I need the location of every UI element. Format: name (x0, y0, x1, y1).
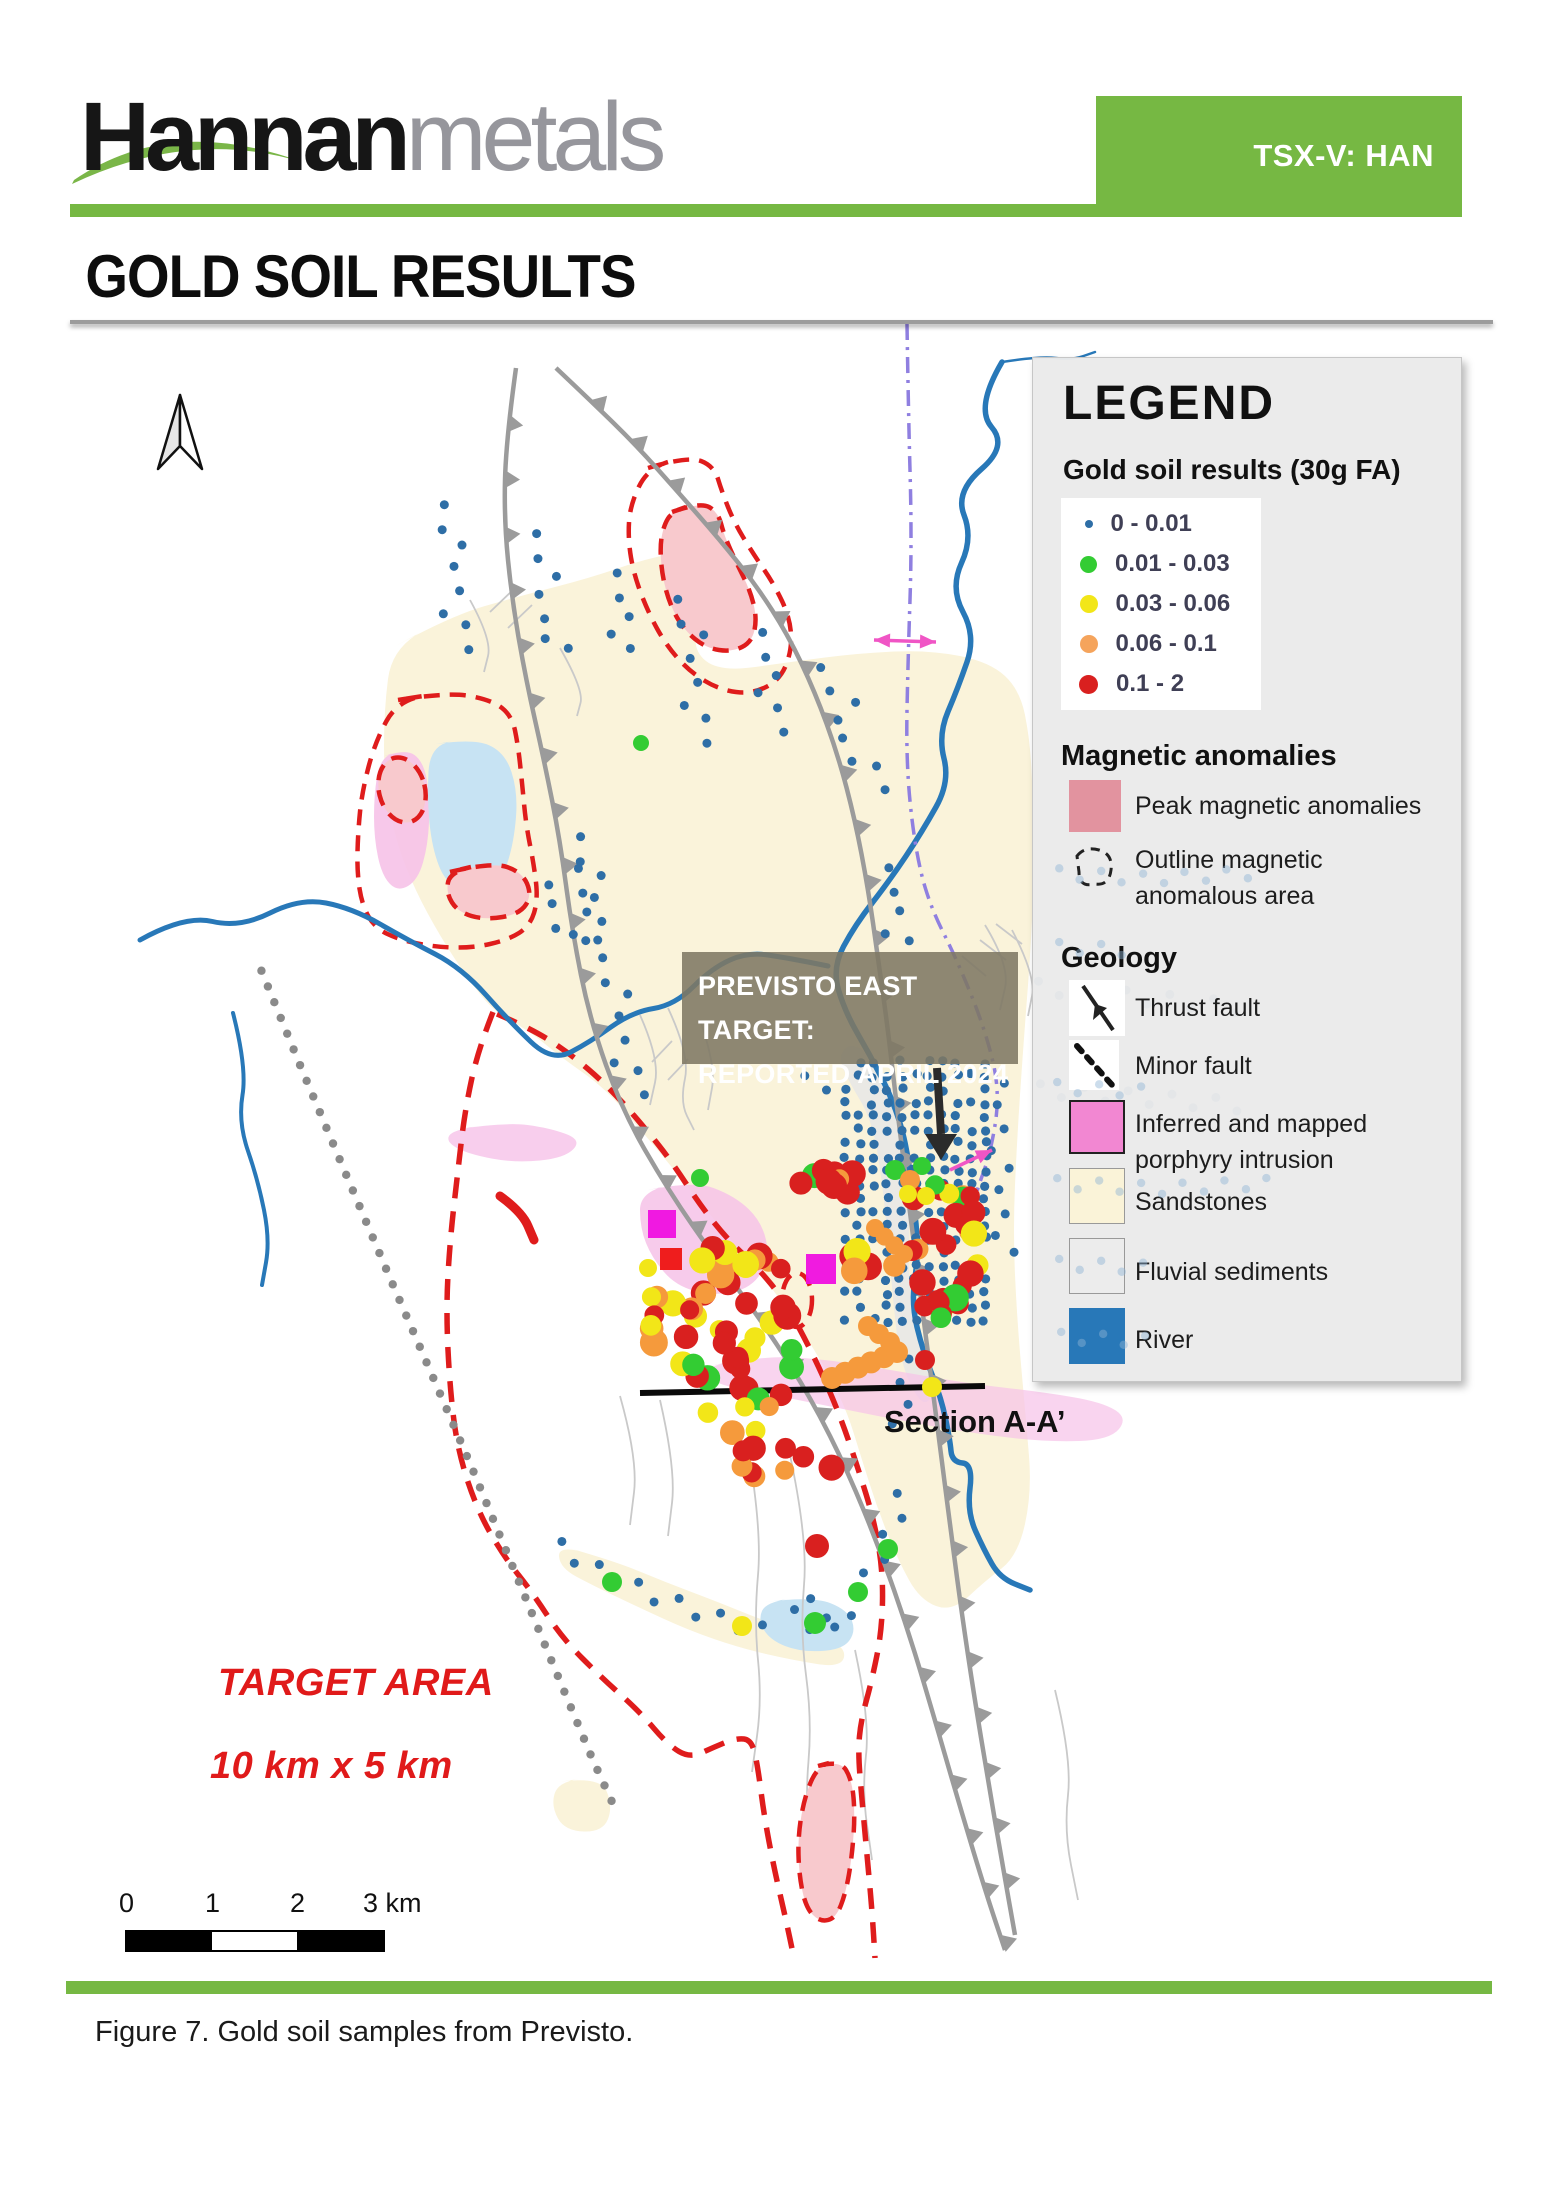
sandstones-swatch (1069, 1168, 1125, 1224)
previsto-target-label: PREVISTO EAST TARGET: REPORTED APRIL 202… (682, 952, 1018, 1064)
river-swatch (1069, 1308, 1125, 1364)
north-arrow-icon (148, 390, 212, 476)
figure-caption: Figure 7. Gold soil samples from Previst… (95, 2016, 633, 2049)
peak-magnetic-swatch (1069, 780, 1121, 832)
legend-title: LEGEND (1063, 376, 1275, 431)
previsto-line2: REPORTED APRIL 2024 (698, 1052, 1018, 1096)
page: Hannanmetals TSX-V: HAN GOLD SOIL RESULT… (0, 0, 1558, 2203)
class-label: 0 - 0.01 (1111, 510, 1192, 538)
river-label: River (1135, 1326, 1193, 1355)
title-row: GOLD SOIL RESULTS (70, 230, 1493, 318)
legend-class-row: 0.1 - 2 (1061, 664, 1261, 704)
porphyry-label1: Inferred and mapped (1135, 1110, 1367, 1139)
outline-magnetic-label1: Outline magnetic (1135, 846, 1323, 875)
class-label: 0.1 - 2 (1116, 670, 1184, 698)
porphyry-label2: porphyry intrusion (1135, 1146, 1334, 1175)
scale-bar-segments (125, 1930, 385, 1952)
legend-class-row: 0.03 - 0.06 (1061, 584, 1261, 624)
scale-tick-0: 0 (119, 1888, 134, 1919)
section-line-label: Section A-A’ (884, 1404, 1065, 1440)
class-label: 0.01 - 0.03 (1115, 550, 1230, 578)
scale-bar-mid-segment (212, 1932, 297, 1950)
logo-text: Hannanmetals (80, 62, 720, 212)
class-dot-blue (1085, 520, 1093, 528)
title-underline (70, 320, 1493, 324)
target-area-size-label: 10 km x 5 km (210, 1745, 453, 1788)
legend-magnetic-heading: Magnetic anomalies (1061, 740, 1337, 773)
scale-tick-2: 2 (290, 1888, 305, 1919)
class-dot-orange (1080, 635, 1098, 653)
target-area-label: TARGET AREA (218, 1662, 494, 1705)
sandstones-label: Sandstones (1135, 1188, 1267, 1217)
minor-fault-label: Minor fault (1135, 1052, 1252, 1081)
peak-magnetic-label: Peak magnetic anomalies (1135, 792, 1421, 821)
porphyry-swatch (1069, 1100, 1125, 1154)
minor-fault-icon (1069, 1040, 1119, 1090)
fluvial-swatch (1069, 1238, 1125, 1294)
fluvial-label: Fluvial sediments (1135, 1258, 1328, 1287)
outline-magnetic-label2: anomalous area (1135, 882, 1314, 911)
legend-class-row: 0 - 0.01 (1061, 504, 1261, 544)
thrust-fault-icon (1069, 980, 1125, 1036)
class-label: 0.06 - 0.1 (1116, 630, 1217, 658)
company-logo: Hannanmetals (80, 62, 720, 212)
scale-tick-3: 3 km (363, 1888, 422, 1919)
legend-panel: LEGEND Gold soil results (30g FA) 0 - 0.… (1032, 357, 1462, 1382)
legend-class-row: 0.06 - 0.1 (1061, 624, 1261, 664)
footer-divider-bar (66, 1981, 1492, 1994)
thrust-fault-label: Thrust fault (1135, 994, 1260, 1023)
geology-fill-areas (374, 552, 1123, 1831)
legend-class-row: 0.01 - 0.03 (1061, 544, 1261, 584)
legend-subtitle: Gold soil results (30g FA) (1063, 454, 1401, 486)
page-title: GOLD SOIL RESULTS (70, 230, 1436, 312)
class-dot-red (1079, 675, 1098, 694)
legend-geology-heading: Geology (1061, 942, 1177, 975)
logo-text-primary: Hannan (80, 82, 406, 191)
class-label: 0.03 - 0.06 (1116, 590, 1231, 618)
scale-tick-1: 1 (205, 1888, 220, 1919)
previsto-line1: PREVISTO EAST TARGET: (698, 964, 1018, 1052)
outline-magnetic-icon (1069, 842, 1123, 902)
class-dot-yellow (1080, 595, 1098, 613)
logo-text-secondary: metals (406, 82, 662, 191)
ticker-label: TSX-V: HAN (1253, 138, 1434, 174)
legend-gold-classes: 0 - 0.01 0.01 - 0.03 0.03 - 0.06 0.06 - … (1061, 498, 1261, 710)
ticker-badge: TSX-V: HAN (1096, 96, 1462, 215)
class-dot-green (1080, 556, 1097, 573)
